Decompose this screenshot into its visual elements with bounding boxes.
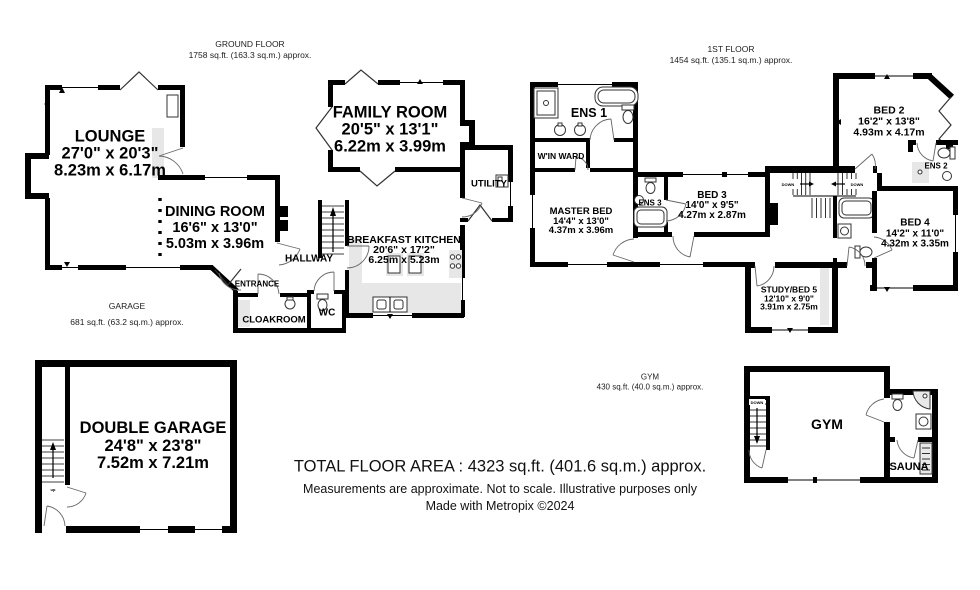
room-label-bed3: BED 3 14'0" x 9'5" 4.27m x 2.87m (678, 191, 746, 221)
garage-area: 681 sq.ft. (63.2 sq.m.) approx. (70, 314, 183, 330)
ground-floor-header: GROUND FLOOR 1758 sq.ft. (163.3 sq.m.) a… (189, 39, 312, 61)
sink-icon (555, 123, 586, 136)
room-label-utility: UTILITY (471, 179, 507, 190)
toilet-icon (645, 178, 656, 194)
room-label-double-garage: DOUBLE GARAGE 24'8" x 23'8" 7.52m x 7.21… (80, 420, 227, 473)
stair-down-label: DOWN (851, 182, 864, 187)
ground-floor-title: GROUND FLOOR (189, 39, 312, 50)
room-label-hallway: HALLWAY (285, 254, 333, 265)
sink-icon (943, 172, 952, 181)
stair-down-label: DOWN (782, 182, 795, 187)
first-floor-header: 1ST FLOOR 1454 sq.ft. (135.1 sq.m.) appr… (670, 44, 793, 66)
room-label-gym: GYM (811, 416, 843, 432)
garage-header: GARAGE 681 sq.ft. (63.2 sq.m.) approx. (70, 298, 183, 330)
toilet-icon (938, 147, 955, 159)
room-label-wc: WC (319, 308, 336, 319)
room-label-lounge: LOUNGE 27'0" x 20'3" 8.23m x 6.17m (54, 129, 166, 180)
fireplace-icon (25, 153, 49, 199)
room-label-breakfast-kitchen: BREAKFAST KITCHEN 20'6" x 17'2" 6.25m x … (347, 235, 461, 265)
bay-doors-icon (120, 72, 158, 90)
toilet-icon (622, 105, 634, 124)
chimney-icon (460, 120, 475, 148)
room-label-sauna: SAUNA (889, 461, 928, 473)
credit: Made with Metropix ©2024 (426, 499, 575, 513)
toilet-icon (892, 394, 903, 411)
floorplan-page: DOWN DOWN (0, 0, 980, 590)
gym-header: GYM 430 sq.ft. (40.0 sq.m.) approx. (597, 373, 704, 392)
bay-window-icon (939, 97, 951, 147)
shower-icon (534, 88, 558, 118)
bathtub-icon (634, 207, 667, 227)
first-floor-title: 1ST FLOOR (670, 44, 793, 55)
room-label-entrance: ENTRANCE (235, 280, 279, 289)
bay-window-icon (316, 107, 332, 150)
sink-icon (838, 224, 851, 238)
french-doors-icon (360, 171, 395, 186)
sink-icon (916, 414, 931, 429)
bathtub-icon (839, 198, 874, 218)
stair-up-label: up (51, 487, 56, 492)
total-floor-area: TOTAL FLOOR AREA : 4323 sq.ft. (401.6 sq… (294, 458, 706, 477)
toilet-icon (855, 246, 872, 258)
stairs-icon: up (42, 440, 64, 492)
disclaimer: Measurements are approximate. Not to sca… (303, 482, 697, 496)
stairs-icon: DOWN (748, 396, 770, 450)
garage-title: GARAGE (70, 298, 183, 314)
room-label-bed4: BED 4 14'2" x 11'0" 4.32m x 3.35m (881, 218, 949, 250)
room-label-ens2: ENS 2 (924, 162, 947, 171)
shower-icon (913, 391, 930, 409)
room-label-ens1: ENS 1 (571, 106, 607, 120)
room-label-ens3: ENS 3 (638, 199, 661, 208)
bay-window-icon (345, 70, 378, 84)
room-label-family-room: FAMILY ROOM 20'5" x 13'1" 6.22m x 3.99m (333, 105, 448, 156)
bathtub-icon (595, 87, 638, 106)
sink-icon (285, 297, 295, 309)
gym-title: GYM (597, 373, 704, 383)
room-label-bed2: BED 2 16'2" x 13'8" 4.93m x 4.17m (853, 106, 924, 139)
ground-floor-area: 1758 sq.ft. (163.3 sq.m.) approx. (189, 50, 312, 61)
room-label-dining-room: DINING ROOM 16'6" x 13'0" 5.03m x 3.96m (165, 204, 265, 252)
room-label-master-bed: MASTER BED 14'4" x 13'0" 4.37m x 3.96m (549, 207, 613, 236)
room-label-cloakroom: CLOAKROOM (242, 315, 305, 326)
stairs-icon (318, 200, 344, 258)
room-label-study-bed5: STUDY/BED 5 12'10" x 9'0" 3.91m x 2.75m (760, 285, 818, 311)
first-floor-area: 1454 sq.ft. (135.1 sq.m.) approx. (670, 55, 793, 66)
stair-down-label: DOWN (751, 400, 764, 405)
gym-area: 430 sq.ft. (40.0 sq.m.) approx. (597, 382, 704, 392)
wall-cabinet-icon (167, 95, 178, 117)
room-label-win-ward: W'IN WARD (538, 151, 585, 161)
shower-icon (918, 170, 922, 174)
